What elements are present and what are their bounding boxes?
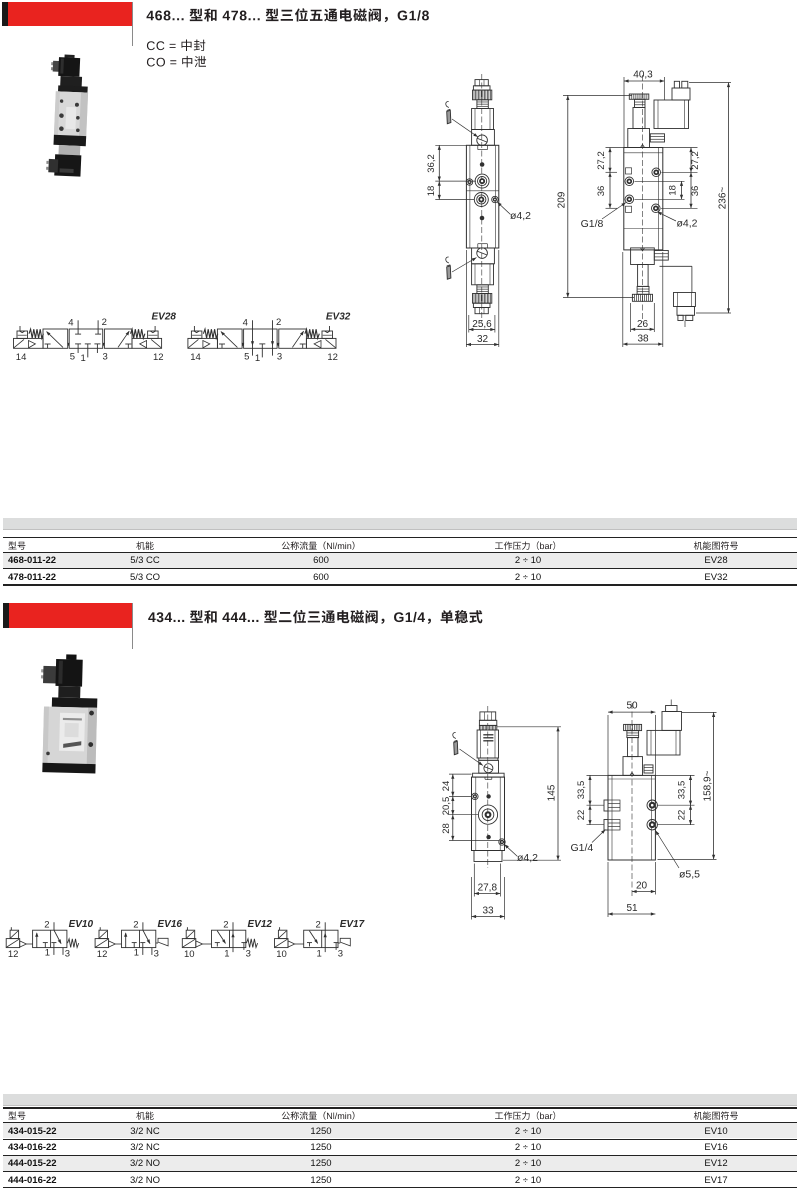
- svg-text:22: 22: [677, 810, 688, 821]
- svg-text:2: 2: [223, 919, 228, 930]
- svg-text:ø5,5: ø5,5: [679, 869, 700, 881]
- svg-text:50: 50: [626, 701, 638, 712]
- svg-text:12: 12: [153, 352, 164, 363]
- svg-text:EV28: EV28: [152, 312, 177, 323]
- svg-text:10: 10: [276, 949, 287, 960]
- svg-text:ø4,2: ø4,2: [510, 210, 531, 222]
- svg-text:EV12: EV12: [248, 919, 273, 930]
- svg-text:25,6: 25,6: [472, 319, 492, 330]
- svg-text:3: 3: [338, 948, 343, 959]
- svg-text:32: 32: [477, 334, 489, 345]
- svg-text:4: 4: [243, 318, 248, 329]
- svg-text:12: 12: [8, 949, 19, 960]
- svg-text:3: 3: [103, 352, 108, 363]
- svg-text:20,5: 20,5: [441, 797, 452, 816]
- svg-text:33,5: 33,5: [677, 781, 688, 800]
- svg-text:2: 2: [276, 317, 281, 328]
- svg-text:3: 3: [277, 352, 282, 363]
- svg-text:33,5: 33,5: [576, 781, 587, 800]
- svg-text:EV17: EV17: [340, 919, 365, 930]
- svg-text:3: 3: [65, 948, 70, 959]
- svg-text:1: 1: [255, 353, 260, 364]
- svg-text:20: 20: [636, 881, 648, 892]
- svg-text:36,2: 36,2: [426, 154, 437, 173]
- svg-text:12: 12: [327, 352, 338, 363]
- svg-text:EV10: EV10: [69, 919, 94, 930]
- svg-text:10: 10: [184, 949, 195, 960]
- svg-text:158,9~: 158,9~: [703, 770, 714, 801]
- svg-text:14: 14: [190, 352, 201, 363]
- svg-text:236~: 236~: [718, 187, 729, 210]
- svg-text:5: 5: [244, 352, 249, 363]
- svg-text:EV16: EV16: [158, 919, 183, 930]
- svg-text:27,2: 27,2: [596, 151, 607, 170]
- svg-text:40,3: 40,3: [633, 70, 653, 81]
- svg-text:2: 2: [44, 919, 49, 930]
- svg-text:1: 1: [134, 948, 139, 959]
- svg-text:EV32: EV32: [326, 312, 351, 323]
- svg-text:28: 28: [441, 823, 452, 834]
- svg-text:3: 3: [246, 948, 251, 959]
- svg-text:14: 14: [16, 352, 27, 363]
- svg-text:2: 2: [133, 919, 138, 930]
- svg-text:38: 38: [637, 334, 649, 345]
- svg-text:1: 1: [224, 948, 229, 959]
- svg-text:209: 209: [557, 191, 568, 208]
- svg-text:1: 1: [45, 948, 50, 959]
- svg-text:ø4,2: ø4,2: [677, 218, 698, 230]
- svg-text:36: 36: [690, 186, 701, 197]
- svg-text:27,2: 27,2: [690, 151, 701, 170]
- svg-text:33: 33: [482, 906, 494, 917]
- svg-text:18: 18: [426, 186, 437, 197]
- svg-text:18: 18: [668, 185, 679, 196]
- svg-text:36: 36: [596, 186, 607, 197]
- svg-text:1: 1: [317, 948, 322, 959]
- svg-text:145: 145: [547, 784, 558, 801]
- svg-text:G1/4: G1/4: [571, 842, 594, 854]
- svg-text:3: 3: [154, 948, 159, 959]
- svg-text:26: 26: [637, 319, 649, 330]
- svg-text:2: 2: [316, 919, 321, 930]
- svg-text:51: 51: [626, 903, 638, 914]
- svg-text:2: 2: [102, 317, 107, 328]
- svg-text:5: 5: [70, 352, 75, 363]
- svg-text:12: 12: [97, 949, 108, 960]
- svg-text:24: 24: [441, 781, 452, 792]
- svg-text:ø4,2: ø4,2: [517, 852, 538, 864]
- svg-text:22: 22: [576, 810, 587, 821]
- svg-text:27,8: 27,8: [478, 883, 498, 894]
- svg-text:G1/8: G1/8: [581, 218, 604, 230]
- svg-text:4: 4: [68, 318, 73, 329]
- svg-text:1: 1: [81, 353, 86, 364]
